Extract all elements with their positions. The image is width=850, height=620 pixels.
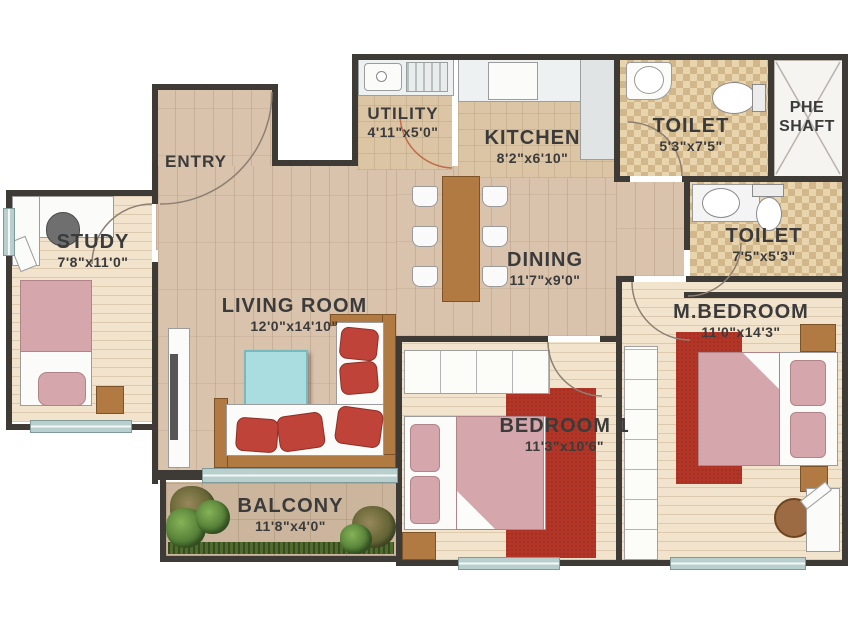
master-pillow bbox=[790, 412, 826, 458]
room-size: 8'2"x6'10" bbox=[450, 150, 615, 167]
window bbox=[670, 557, 806, 570]
master-bedroom-label: M.BEDROOM 11'0"x14'3" bbox=[638, 300, 844, 341]
wall bbox=[600, 336, 622, 342]
room-name: STUDY bbox=[28, 230, 158, 254]
room-size: 11'7"x9'0" bbox=[460, 272, 630, 289]
toilet1-wc-icon bbox=[712, 82, 756, 114]
floor-plan: ENTRY UTILITY 4'11"x5'0" KITCHEN 8'2"x6'… bbox=[0, 0, 850, 620]
wall bbox=[686, 276, 848, 282]
toilet1-wc-tank bbox=[752, 84, 766, 112]
sofa-cushion bbox=[235, 417, 279, 454]
room-name: KITCHEN bbox=[450, 126, 615, 150]
sink-drain-icon bbox=[376, 71, 387, 82]
window bbox=[30, 420, 132, 433]
dining-chair bbox=[482, 186, 508, 207]
toilet2-wc-tank bbox=[752, 184, 784, 197]
blanket-fold bbox=[457, 491, 495, 529]
wall bbox=[396, 336, 548, 342]
room-size: 11'8"x4'0" bbox=[198, 518, 383, 535]
sofa-frame bbox=[214, 454, 396, 468]
wall bbox=[160, 478, 166, 562]
room-size: 7'5"x5'3" bbox=[688, 248, 840, 265]
room-size: 4'11"x5'0" bbox=[352, 124, 454, 141]
toilet2-basin-icon bbox=[702, 188, 740, 218]
wall bbox=[272, 160, 358, 166]
room-size: 11'0"x14'3" bbox=[638, 324, 844, 341]
room-size: 12'0"x14'10" bbox=[192, 318, 397, 335]
master-pillow bbox=[790, 360, 826, 406]
balcony-label: BALCONY 11'8"x4'0" bbox=[198, 494, 383, 535]
toilet1-label: TOILET 5'3"x7'5" bbox=[616, 114, 766, 155]
dining-chair bbox=[412, 186, 438, 207]
bedroom1-pillow bbox=[410, 476, 440, 524]
dining-label: DINING 11'7"x9'0" bbox=[460, 248, 630, 289]
toilet1-basin-bowl-icon bbox=[634, 66, 664, 94]
room-name: SHAFT bbox=[770, 117, 844, 136]
stove-icon bbox=[488, 62, 538, 100]
window bbox=[3, 208, 15, 256]
room-name: TOILET bbox=[616, 114, 766, 138]
room-name: M.BEDROOM bbox=[638, 300, 844, 324]
living-room-label: LIVING ROOM 12'0"x14'10" bbox=[192, 294, 397, 335]
window bbox=[458, 557, 560, 570]
room-name: ENTRY bbox=[150, 152, 242, 172]
room-name: BALCONY bbox=[198, 494, 383, 518]
study-ottoman bbox=[38, 372, 86, 406]
room-name: PHE bbox=[770, 98, 844, 117]
sofa bbox=[214, 314, 394, 466]
kitchen-label: KITCHEN 8'2"x6'10" bbox=[450, 126, 615, 167]
wall bbox=[682, 176, 774, 182]
dining-chair bbox=[412, 266, 438, 287]
room-name: DINING bbox=[460, 248, 630, 272]
sofa-frame bbox=[382, 314, 396, 468]
wall bbox=[396, 336, 402, 566]
room-name: TOILET bbox=[688, 224, 840, 248]
wall bbox=[6, 190, 158, 196]
dining-chair bbox=[482, 226, 508, 247]
wall bbox=[152, 84, 278, 90]
drainboard-icon bbox=[406, 62, 448, 92]
wall bbox=[614, 176, 630, 182]
wall bbox=[152, 262, 158, 428]
blanket-fold bbox=[743, 353, 779, 389]
wall bbox=[160, 556, 400, 562]
wall bbox=[272, 84, 278, 166]
utility-label: UTILITY 4'11"x5'0" bbox=[352, 104, 454, 141]
toilet2-label: TOILET 7'5"x5'3" bbox=[688, 224, 840, 265]
wall bbox=[152, 190, 158, 204]
wall bbox=[158, 470, 206, 480]
study-bed-blanket bbox=[20, 280, 92, 352]
study-label: STUDY 7'8"x11'0" bbox=[28, 230, 158, 271]
tv-icon bbox=[170, 354, 178, 440]
bedroom1-side-table bbox=[402, 532, 436, 560]
master-bed-blanket bbox=[698, 352, 780, 466]
room-size: 11'3"x10'6" bbox=[462, 438, 667, 455]
sofa-cushion bbox=[276, 411, 327, 453]
room-name: LIVING ROOM bbox=[192, 294, 397, 318]
wall bbox=[768, 176, 848, 182]
wall bbox=[152, 84, 158, 198]
sofa-cushion bbox=[334, 405, 385, 449]
wall bbox=[684, 292, 848, 298]
bedroom1-pillow bbox=[410, 424, 440, 472]
room-name: UTILITY bbox=[352, 104, 454, 124]
sliding-door-window bbox=[202, 468, 398, 483]
study-side-table bbox=[96, 386, 124, 414]
dining-chair bbox=[412, 226, 438, 247]
bedroom1-wardrobe bbox=[404, 350, 550, 394]
bedroom1-label: BEDROOM 1 11'3"x10'6" bbox=[462, 414, 667, 455]
room-name: BEDROOM 1 bbox=[462, 414, 667, 438]
phe-shaft-label: PHE SHAFT bbox=[770, 98, 844, 136]
sofa-cushion bbox=[339, 360, 380, 395]
room-size: 7'8"x11'0" bbox=[28, 254, 158, 271]
entry-label: ENTRY bbox=[150, 152, 242, 172]
room-size: 5'3"x7'5" bbox=[616, 138, 766, 155]
